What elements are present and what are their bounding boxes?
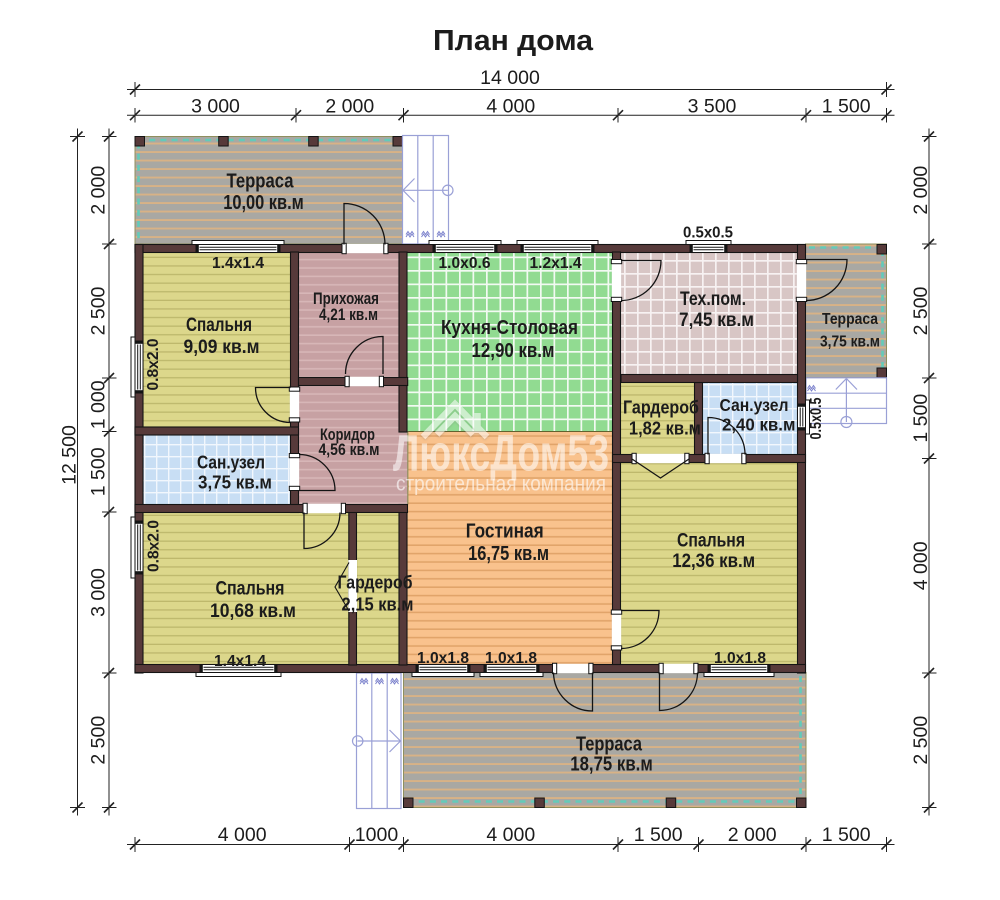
svg-text:0.8x2.0: 0.8x2.0 (145, 338, 162, 390)
svg-text:14 000: 14 000 (480, 67, 540, 89)
svg-text:1,82 кв.м: 1,82 кв.м (629, 419, 701, 439)
svg-text:2 000: 2 000 (728, 824, 777, 846)
svg-text:2,15 кв.м: 2,15 кв.м (342, 595, 414, 615)
svg-text:18,75 кв.м: 18,75 кв.м (570, 754, 653, 776)
svg-text:Гардероб: Гардероб (338, 573, 413, 593)
svg-text:Гардероб: Гардероб (623, 398, 699, 418)
svg-text:1000: 1000 (355, 824, 399, 846)
svg-text:4 000: 4 000 (486, 824, 535, 846)
svg-text:Спальня: Спальня (216, 579, 285, 600)
svg-text:4 000: 4 000 (910, 541, 932, 590)
svg-text:1.0x0.6: 1.0x0.6 (439, 255, 491, 272)
svg-text:2 000: 2 000 (325, 96, 374, 118)
svg-text:Терраса: Терраса (576, 734, 643, 756)
svg-text:4 000: 4 000 (218, 824, 267, 846)
svg-text:12 500: 12 500 (59, 425, 81, 485)
svg-text:Сан.узел: Сан.узел (720, 395, 789, 415)
svg-text:2 000: 2 000 (910, 166, 932, 215)
svg-text:1.4x1.4: 1.4x1.4 (212, 255, 264, 272)
svg-text:1.0x1.8: 1.0x1.8 (485, 650, 537, 667)
svg-text:Тех.пом.: Тех.пом. (680, 289, 746, 310)
svg-text:1 500: 1 500 (822, 96, 871, 118)
svg-text:1 000: 1 000 (88, 380, 110, 429)
svg-text:3 000: 3 000 (88, 568, 110, 617)
svg-text:3,75 кв.м: 3,75 кв.м (820, 334, 880, 351)
svg-text:Гостиная: Гостиная (466, 521, 544, 543)
svg-text:16,75 кв.м: 16,75 кв.м (468, 543, 549, 565)
svg-text:12,90 кв.м: 12,90 кв.м (472, 340, 555, 362)
svg-text:Спальня: Спальня (677, 531, 745, 552)
svg-text:4,21 кв.м: 4,21 кв.м (319, 305, 378, 324)
svg-text:Терраса: Терраса (227, 171, 295, 193)
svg-text:4,56 кв.м: 4,56 кв.м (319, 441, 380, 459)
svg-text:Кухня-Столовая: Кухня-Столовая (441, 317, 578, 339)
svg-text:9,09 кв.м: 9,09 кв.м (184, 337, 260, 358)
svg-text:Спальня: Спальня (186, 315, 252, 336)
svg-text:4 000: 4 000 (486, 96, 535, 118)
svg-text:12,36 кв.м: 12,36 кв.м (672, 551, 755, 572)
svg-text:0.8x2.0: 0.8x2.0 (146, 520, 163, 572)
svg-text:10,68 кв.м: 10,68 кв.м (210, 601, 296, 622)
svg-text:2 500: 2 500 (88, 286, 110, 335)
svg-text:1.4x1.4: 1.4x1.4 (214, 653, 266, 670)
svg-text:1.0x1.8: 1.0x1.8 (417, 650, 469, 667)
svg-text:План дома: План дома (433, 25, 594, 57)
svg-text:0.5x0.5: 0.5x0.5 (683, 225, 733, 242)
svg-text:10,00 кв.м: 10,00 кв.м (223, 192, 304, 214)
svg-text:3 500: 3 500 (688, 96, 737, 118)
svg-text:3,75 кв.м: 3,75 кв.м (198, 473, 272, 493)
svg-text:0.5x0.5: 0.5x0.5 (808, 397, 825, 439)
svg-text:Терраса: Терраса (822, 311, 878, 328)
svg-text:1.2x1.4: 1.2x1.4 (530, 255, 582, 272)
svg-text:1 500: 1 500 (88, 447, 110, 496)
svg-text:Сан.узел: Сан.узел (197, 453, 265, 473)
svg-text:3 000: 3 000 (191, 96, 240, 118)
svg-text:2 500: 2 500 (910, 716, 932, 765)
svg-text:2,40 кв.м: 2,40 кв.м (722, 415, 796, 435)
svg-text:2 000: 2 000 (88, 166, 110, 215)
svg-text:1 500: 1 500 (634, 824, 683, 846)
svg-text:1 500: 1 500 (910, 394, 932, 443)
svg-text:1.0x1.8: 1.0x1.8 (714, 650, 766, 667)
svg-text:2 500: 2 500 (910, 286, 932, 335)
svg-text:7,45 кв.м: 7,45 кв.м (679, 310, 754, 331)
svg-text:строительная компания: строительная компания (396, 472, 606, 496)
svg-text:2 500: 2 500 (88, 716, 110, 765)
svg-text:1 500: 1 500 (822, 824, 871, 846)
